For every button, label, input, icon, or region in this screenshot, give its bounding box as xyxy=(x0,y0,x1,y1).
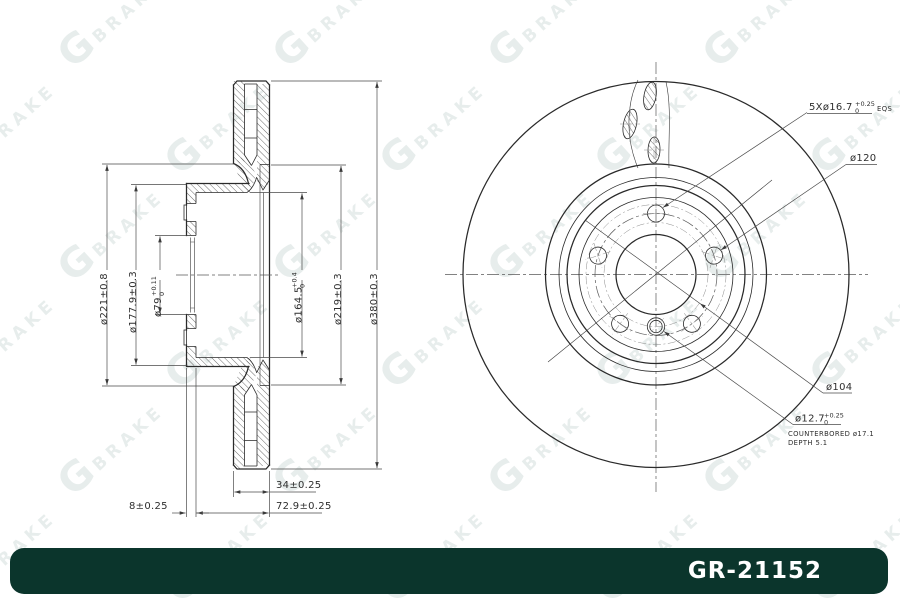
svg-text:0: 0 xyxy=(299,284,307,288)
dim-label-380: ø380±0.3 xyxy=(369,273,380,325)
drawing-sheet: GBRAKEGBRAKEGBRAKEGBRAKEGBRAKEGBRAKEGBRA… xyxy=(0,0,900,600)
dim-label-8: 8±0.25 xyxy=(129,501,168,512)
part-number: GR-21152 xyxy=(688,558,822,584)
footer-bar: GR-21152 xyxy=(10,548,888,594)
svg-text:ø12.7: ø12.7 xyxy=(795,414,825,425)
label-counterbore-1: COUNTERBORED ø17.1 xyxy=(788,430,874,438)
svg-text:ø177.9±0.3: ø177.9±0.3 xyxy=(128,271,139,333)
svg-text:ø380±0.3: ø380±0.3 xyxy=(369,273,380,325)
svg-text:ø79: ø79 xyxy=(153,297,164,317)
svg-text:0: 0 xyxy=(824,419,828,427)
svg-text:0: 0 xyxy=(855,107,859,115)
svg-text:+0.11: +0.11 xyxy=(150,276,158,296)
section-view: ø221±0.8 ø177.9±0.3 ø79 +0.11 0 ø164.5 +… xyxy=(99,81,382,517)
dim-label-221: ø221±0.8 xyxy=(99,273,110,325)
svg-text:ø164.5: ø164.5 xyxy=(294,286,305,323)
brake-disc-technical-drawing: ø221±0.8 ø177.9±0.3 ø79 +0.11 0 ø164.5 +… xyxy=(0,0,900,600)
svg-text:+0.4: +0.4 xyxy=(291,272,299,288)
svg-text:5Xø16.7: 5Xø16.7 xyxy=(809,102,853,113)
dim-label-219: ø219±0.3 xyxy=(333,273,344,325)
dim-label-729: 72.9±0.25 xyxy=(276,501,332,512)
svg-text:0: 0 xyxy=(158,292,166,296)
pin-hole xyxy=(647,318,664,335)
dim-label-79: ø79 +0.11 0 xyxy=(150,276,166,317)
svg-text:EQS: EQS xyxy=(877,105,892,113)
dim-label-34: 34±0.25 xyxy=(276,480,321,491)
vane-section-cutout xyxy=(620,80,669,168)
label-counterbore-2: DEPTH 5.1 xyxy=(788,439,827,447)
dim-label-177: ø177.9±0.3 xyxy=(128,271,139,333)
front-leaders xyxy=(585,113,877,425)
front-view: 5Xø16.7 +0.25 0 EQS ø120 ø104 ø12.7 +0.2… xyxy=(445,62,892,492)
svg-text:ø221±0.8: ø221±0.8 xyxy=(99,273,110,325)
svg-text:ø219±0.3: ø219±0.3 xyxy=(333,273,344,325)
dim-label-164: ø164.5 +0.4 0 xyxy=(291,272,307,323)
section-trace-line xyxy=(548,180,772,362)
label-d120: ø120 xyxy=(850,153,876,164)
label-d104: ø104 xyxy=(826,382,852,393)
label-bolt-holes: 5Xø16.7 +0.25 0 EQS xyxy=(809,100,892,115)
